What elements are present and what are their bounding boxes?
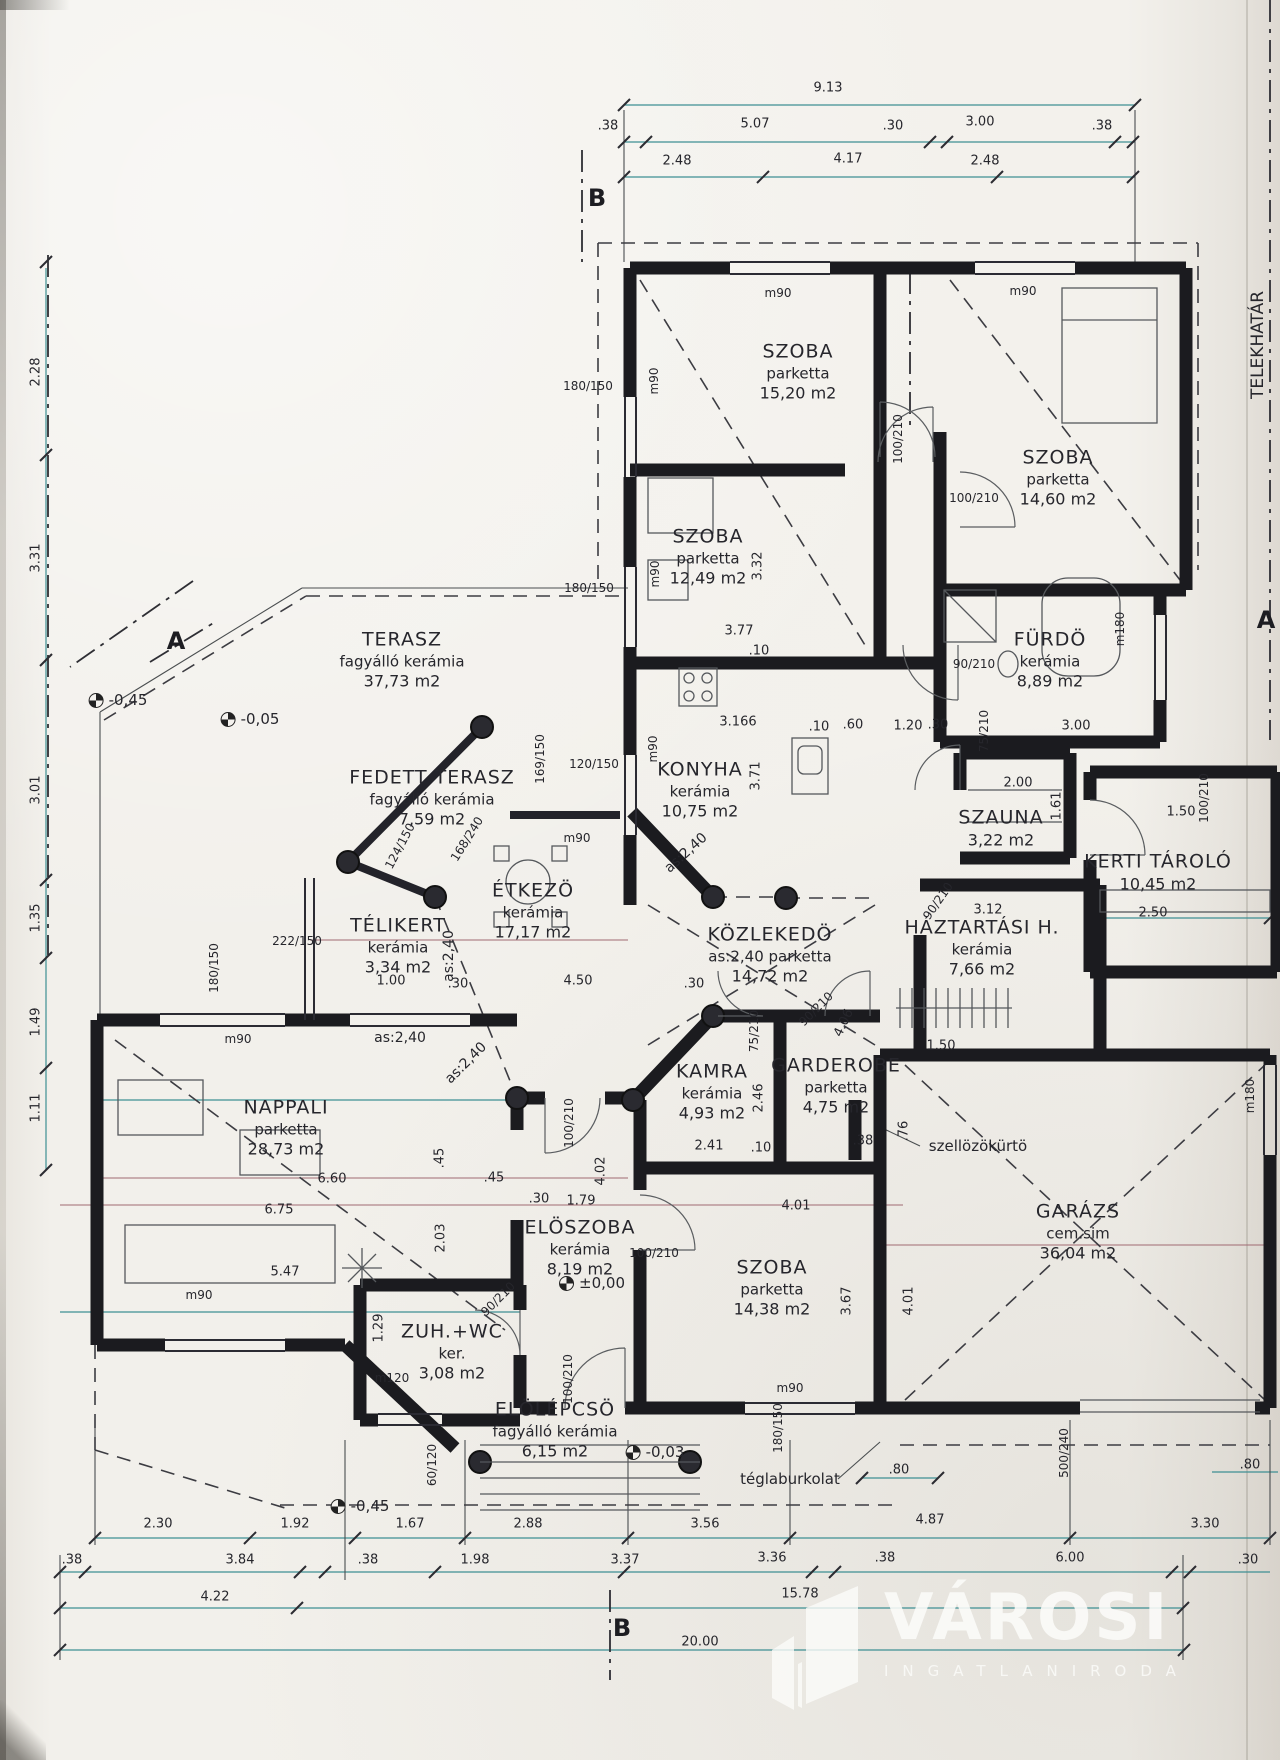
dim-label: .76: [897, 1121, 912, 1142]
room-rn: FEDETT TERASZ: [349, 766, 515, 791]
dim-label: 4.50: [564, 974, 593, 989]
room-label: KONYHAkerámia10,75 m2: [657, 758, 742, 823]
dim-label: .38: [358, 1553, 379, 1568]
dim-label: .45: [433, 1148, 448, 1169]
dim-label: m90: [186, 1288, 213, 1302]
room-ra: 7,66 m2: [904, 960, 1059, 981]
dim-label: 2.30: [144, 1517, 173, 1532]
dim-label: .30: [928, 718, 949, 733]
dim-label: 2.50: [1139, 906, 1168, 921]
room-rf: parketta: [734, 1280, 811, 1300]
dim-label: .30: [529, 1192, 550, 1207]
dim-label: 60/120: [425, 1444, 439, 1486]
brand-building-icon: [772, 1586, 858, 1710]
room-label: KAMRAkerámia4,93 m2: [676, 1060, 748, 1125]
dim-label: 5.47: [271, 1265, 300, 1280]
dim-label: 20.00: [681, 1635, 718, 1650]
room-rf: fagyálló kerámia: [492, 1422, 617, 1442]
room-rf: kerámia: [492, 903, 574, 923]
dim-label: 100/210: [1197, 773, 1211, 823]
room-ra: 10,75 m2: [657, 802, 742, 823]
dim-label: .10: [749, 644, 770, 659]
dim-label: 6.75: [265, 1203, 294, 1218]
room-rf: kerámia: [676, 1084, 748, 1104]
dim-label: 1.29: [372, 1314, 387, 1343]
room-rf: kerámia: [525, 1240, 636, 1260]
dim-label: 169/150: [533, 734, 547, 784]
room-rn: GARÁZS: [1036, 1200, 1120, 1225]
room-ra: 36,04 m2: [1036, 1244, 1120, 1265]
room-rn: ELÖLÉPCSÖ: [492, 1398, 617, 1423]
dim-label: 4.02: [594, 1157, 609, 1186]
dim-label: m90: [777, 1381, 804, 1395]
room-label: HÁZTARTÁSI H.kerámia7,66 m2: [904, 916, 1059, 981]
dim-label: m180: [1113, 612, 1127, 647]
dim-label: .10: [809, 720, 830, 735]
room-ra: 7,59 m2: [349, 810, 515, 831]
dim-label: 6.60: [318, 1172, 347, 1187]
dim-label: .45: [484, 1171, 505, 1186]
dim-label: .38: [875, 1551, 896, 1566]
dim-label: 90/210: [478, 1279, 518, 1319]
section-mark: B: [613, 1614, 631, 1642]
elevation-mark: -0,05: [221, 710, 280, 728]
room-rf: fagyálló kerámia: [339, 652, 464, 672]
dim-label: m180: [1243, 1079, 1257, 1114]
room-ra: 37,73 m2: [339, 672, 464, 693]
dim-label: 1.67: [396, 1517, 425, 1532]
dim-label: m90: [1010, 284, 1037, 298]
dim-label: 500/240: [1057, 1428, 1071, 1478]
dim-label: .38: [62, 1553, 83, 1568]
dim-label: 180/150: [207, 943, 221, 993]
elevation-symbol-icon: [89, 693, 104, 708]
room-ra: 12,49 m2: [670, 569, 747, 590]
dim-label: 3.36: [758, 1551, 787, 1566]
room-ra: 14,60 m2: [1020, 490, 1097, 511]
dim-label: .38: [1092, 119, 1113, 134]
dim-label: 2.41: [695, 1139, 724, 1154]
elevation-mark: -0,45: [89, 691, 148, 709]
room-ra: 17,17 m2: [492, 923, 574, 944]
dim-label: 5.07: [741, 117, 770, 132]
dim-label: m90: [225, 1032, 252, 1046]
dim-label: 180/150: [771, 1403, 785, 1453]
elevation-symbol-icon: [559, 1276, 574, 1291]
dim-label: 2.48: [663, 154, 692, 169]
dim-label: 120/150: [569, 757, 619, 771]
dim-label: 2.46: [752, 1084, 767, 1113]
room-label: SZAUNA3,22 m2: [958, 805, 1043, 850]
elevation-mark: -0,45: [331, 1497, 390, 1515]
dim-label: 9.13: [814, 81, 843, 96]
room-rn: KAMRA: [676, 1060, 748, 1085]
dim-label: 1.20: [894, 719, 923, 734]
room-ra: 10,45 m2: [1084, 874, 1232, 895]
dim-label: 4.01: [902, 1287, 917, 1316]
room-label: TERASZfagyálló kerámia37,73 m2: [339, 628, 464, 693]
dim-label: as:2,40: [661, 830, 710, 877]
room-rf: kerámia: [350, 938, 446, 958]
room-rn: FÜRDÖ: [1014, 628, 1087, 653]
room-rf: kerámia: [904, 940, 1059, 960]
room-label: ELÖLÉPCSÖfagyálló kerámia6,15 m2: [492, 1398, 617, 1463]
elevation-value: -0,45: [351, 1497, 390, 1515]
room-rf: cem.sim: [1036, 1224, 1120, 1244]
dim-label: .80: [889, 1463, 910, 1478]
dim-label: 3.37: [611, 1553, 640, 1568]
room-label: KÖZLEKEDÖas:2,40 parketta14,72 m2: [707, 923, 832, 988]
room-rn: KERTI TÁROLÓ: [1084, 849, 1232, 874]
room-rn: SZAUNA: [958, 805, 1043, 830]
dim-label: 1.61: [1050, 792, 1065, 821]
dim-label: as:2,40: [442, 1039, 490, 1087]
room-rf: parketta: [771, 1078, 901, 1098]
label-layer: SZOBAparketta15,20 m2SZOBAparketta14,60 …: [0, 0, 1280, 1760]
room-label: ÉTKEZÖkerámia17,17 m2: [492, 879, 574, 944]
room-label: NAPPALIparketta28,73 m2: [243, 1096, 328, 1161]
dim-label: 1.11: [29, 1094, 44, 1123]
dim-label: 3.30: [1191, 1517, 1220, 1532]
room-rn: ZUH.+WC: [401, 1320, 503, 1345]
room-rf: ker.: [401, 1344, 503, 1364]
room-rn: SZOBA: [670, 525, 747, 550]
room-rn: NAPPALI: [243, 1096, 328, 1121]
room-rn: GARDEROBE: [771, 1054, 901, 1079]
elevation-value: -0,03: [646, 1443, 685, 1461]
room-ra: 4,75 m2: [771, 1098, 901, 1119]
dim-label: 3.71: [749, 762, 764, 791]
room-rf: parketta: [670, 549, 747, 569]
dim-label: 3.00: [966, 115, 995, 130]
dim-label: 3.00: [1062, 719, 1091, 734]
room-label: FÜRDÖkerámia8,89 m2: [1014, 628, 1087, 693]
room-rf: parketta: [760, 364, 837, 384]
dim-label: szellözökürtö: [929, 1137, 1027, 1155]
elevation-symbol-icon: [221, 712, 236, 727]
dim-label: 75/210: [747, 1010, 761, 1052]
dim-label: m120: [375, 1371, 410, 1385]
dim-label: 3.84: [226, 1553, 255, 1568]
dim-label: 3.166: [719, 715, 756, 730]
room-rn: SZOBA: [760, 340, 837, 365]
room-ra: 6,15 m2: [492, 1442, 617, 1463]
room-rn: TERASZ: [339, 628, 464, 653]
room-label: FEDETT TERASZfagyálló kerámia7,59 m2: [349, 766, 515, 831]
dim-label: .30: [684, 977, 705, 992]
brand-logo: VÁROSI INGATLANIRODA: [772, 1586, 1190, 1710]
room-label: KERTI TÁROLÓ10,45 m2: [1084, 849, 1232, 894]
floor-plan-scan: SZOBAparketta15,20 m2SZOBAparketta14,60 …: [0, 0, 1280, 1760]
dim-label: .30: [883, 119, 904, 134]
room-label: TÉLIKERTkerámia3,34 m2: [350, 914, 446, 979]
dim-label: TELEKHATÁR: [1248, 291, 1268, 399]
room-label: SZOBAparketta14,38 m2: [734, 1256, 811, 1321]
room-rn: KÖZLEKEDÖ: [707, 923, 832, 948]
dim-label: 180/150: [563, 379, 613, 393]
room-label: ELÖSZOBAkerámia8,19 m2: [525, 1216, 636, 1281]
dim-label: 100/210: [562, 1098, 576, 1148]
dim-label: 4.01: [782, 1199, 811, 1214]
dim-label: téglaburkolat: [740, 1470, 840, 1488]
room-label: GARÁZScem.sim36,04 m2: [1036, 1200, 1120, 1265]
dim-label: 3.01: [29, 776, 44, 805]
dim-label: .10: [751, 1141, 772, 1156]
room-rf: parketta: [1020, 470, 1097, 490]
dim-label: 2.28: [29, 358, 44, 387]
room-label: SZOBAparketta12,49 m2: [670, 525, 747, 590]
dim-label: .30: [1238, 1553, 1259, 1568]
dim-label: 3.56: [691, 1517, 720, 1532]
room-rn: ELÖSZOBA: [525, 1216, 636, 1241]
dim-label: 1.50: [1167, 805, 1196, 820]
dim-label: m90: [647, 368, 661, 395]
room-ra: 4,93 m2: [676, 1104, 748, 1125]
dim-label: 1.49: [29, 1008, 44, 1037]
dim-label: .80: [1240, 1458, 1261, 1473]
dim-label: 1.79: [567, 1194, 596, 1209]
room-rf: kerámia: [657, 782, 742, 802]
dim-label: .38: [598, 119, 619, 134]
section-mark: A: [1257, 606, 1276, 634]
room-label: SZOBAparketta14,60 m2: [1020, 446, 1097, 511]
dim-label: 1.98: [461, 1553, 490, 1568]
dim-label: 100/210: [629, 1246, 679, 1260]
dim-label: 2.00: [1004, 776, 1033, 791]
room-rf: parketta: [243, 1120, 328, 1140]
dim-label: .60: [843, 718, 864, 733]
room-ra: 8,89 m2: [1014, 672, 1087, 693]
room-label: SZOBAparketta15,20 m2: [760, 340, 837, 405]
dim-label: .38: [853, 1134, 874, 1149]
dim-label: 6.00: [1056, 1551, 1085, 1566]
room-rn: SZOBA: [1020, 446, 1097, 471]
dim-label: 222/150: [272, 934, 322, 948]
dim-label: 3.77: [725, 624, 754, 639]
dim-label: 100/210: [949, 491, 999, 505]
elevation-value: -0,05: [241, 710, 280, 728]
dim-label: 4.06: [831, 1007, 857, 1040]
dim-label: 180/150: [564, 581, 614, 595]
room-ra: 14,72 m2: [707, 967, 832, 988]
room-ra: 28,73 m2: [243, 1140, 328, 1161]
dim-label: as:2,40: [441, 930, 457, 982]
dim-label: 2.88: [514, 1517, 543, 1532]
room-rn: ÉTKEZÖ: [492, 879, 574, 904]
dim-label: m90: [648, 561, 662, 588]
dim-label: 3.67: [840, 1287, 855, 1316]
room-ra: 3,08 m2: [401, 1364, 503, 1385]
dim-label: 4.17: [834, 152, 863, 167]
brand-name: VÁROSI: [884, 1586, 1190, 1650]
dim-label: 3.31: [29, 544, 44, 573]
dim-label: 1.00: [377, 974, 406, 989]
room-rn: TÉLIKERT: [350, 914, 446, 939]
elevation-mark: -0,03: [626, 1443, 685, 1461]
room-rn: SZOBA: [734, 1256, 811, 1281]
elevation-value: ±0,00: [579, 1274, 625, 1292]
dim-label: 75/210: [977, 710, 991, 752]
room-ra: 3,22 m2: [958, 830, 1043, 851]
dim-label: 100/210: [891, 414, 905, 464]
dim-label: m90: [646, 736, 660, 763]
section-mark: B: [588, 184, 606, 212]
room-rf: as:2,40 parketta: [707, 947, 832, 967]
dim-label: 3.32: [751, 552, 766, 581]
room-rf: fagyálló kerámia: [349, 790, 515, 810]
dim-label: 90/210: [953, 657, 995, 671]
dim-label: m90: [765, 286, 792, 300]
dim-label: 4.87: [916, 1513, 945, 1528]
elevation-symbol-icon: [626, 1445, 641, 1460]
dim-label: 2.48: [971, 154, 1000, 169]
dim-label: 2.03: [434, 1224, 449, 1253]
elevation-mark: ±0,00: [559, 1274, 625, 1292]
dim-label: 3.12: [974, 903, 1003, 918]
dim-label: 1.35: [29, 904, 44, 933]
room-rf: kerámia: [1014, 652, 1087, 672]
dim-label: as:2,40: [374, 1030, 426, 1046]
dim-label: 1.50: [927, 1039, 956, 1054]
section-mark: A: [167, 627, 186, 655]
dim-label: 1.92: [281, 1517, 310, 1532]
dim-label: 100/210: [561, 1354, 575, 1404]
room-rn: KONYHA: [657, 758, 742, 783]
dim-label: 4.22: [201, 1590, 230, 1605]
elevation-symbol-icon: [331, 1499, 346, 1514]
room-label: GARDEROBEparketta4,75 m2: [771, 1054, 901, 1119]
brand-subtitle: INGATLANIRODA: [884, 1662, 1190, 1680]
elevation-value: -0,45: [109, 691, 148, 709]
room-label: ZUH.+WCker.3,08 m2: [401, 1320, 503, 1385]
dim-label: 90/210: [796, 989, 836, 1029]
dim-label: m90: [564, 831, 591, 845]
room-ra: 15,20 m2: [760, 384, 837, 405]
room-ra: 14,38 m2: [734, 1300, 811, 1321]
